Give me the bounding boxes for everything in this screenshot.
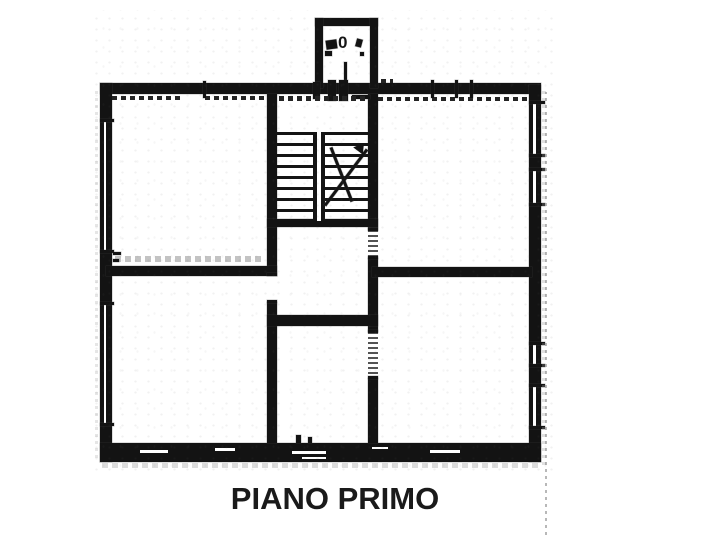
floor-plan-scan: 0 <box>0 0 702 535</box>
scan-noise-overlay <box>88 10 560 472</box>
floor-title: PIANO PRIMO <box>0 481 686 517</box>
